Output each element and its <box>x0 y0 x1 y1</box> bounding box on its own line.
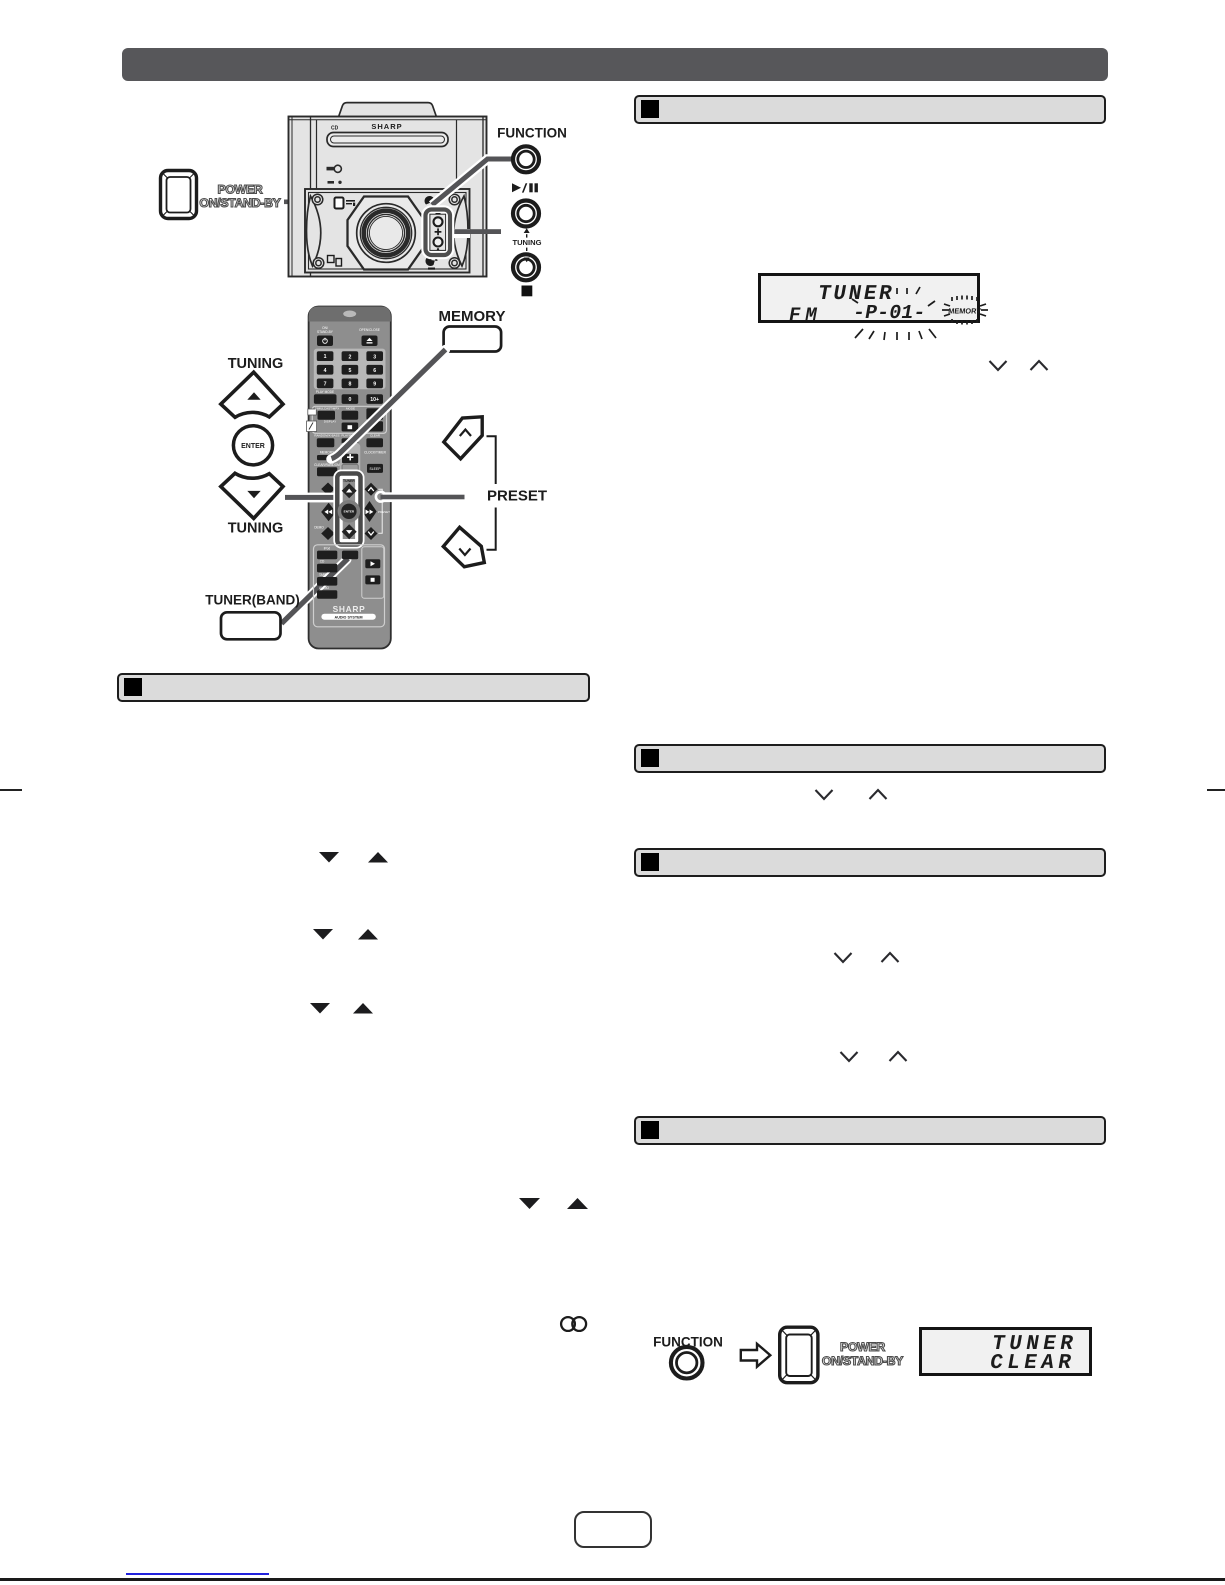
svg-text:PLAY MODE: PLAY MODE <box>316 390 334 394</box>
svg-text:TUNER(BAND): TUNER(BAND) <box>205 593 300 608</box>
svg-text:CLEAR: CLEAR <box>370 434 381 438</box>
svg-text:AUDIO: AUDIO <box>319 586 330 590</box>
svg-text:OPEN/CLOSE: OPEN/CLOSE <box>359 328 380 332</box>
svg-text:6: 6 <box>373 368 376 374</box>
svg-text:CD: CD <box>320 560 325 564</box>
svg-text:CLEAR/RANDOM: CLEAR/RANDOM <box>314 463 340 467</box>
svg-text:POWER: POWER <box>218 183 263 197</box>
svg-text:PRESET: PRESET <box>378 510 390 514</box>
svg-text:POWER: POWER <box>840 1340 885 1354</box>
svg-text:SHARP: SHARP <box>333 604 366 614</box>
svg-text:8: 8 <box>348 382 351 388</box>
svg-text:CLOCK/TIMER: CLOCK/TIMER <box>364 451 386 455</box>
svg-text:TUNER: TUNER <box>343 479 355 483</box>
svg-text:9: 9 <box>373 382 376 388</box>
svg-text:RANDOM/X-BASS: RANDOM/X-BASS <box>314 434 339 438</box>
svg-text:ENTER: ENTER <box>241 443 265 450</box>
svg-text:SIMULCAST/MPX: SIMULCAST/MPX <box>315 407 340 411</box>
svg-text:AUDIO SYSTEM: AUDIO SYSTEM <box>335 615 363 619</box>
svg-text:ON/STAND-BY: ON/STAND-BY <box>822 1354 903 1368</box>
svg-text:iPod: iPod <box>324 546 331 550</box>
svg-text:SLEEP: SLEEP <box>370 467 382 471</box>
svg-text:CD: CD <box>331 126 339 132</box>
svg-text:MEMORY: MEMORY <box>948 307 982 316</box>
svg-text:MEMORY: MEMORY <box>439 308 506 325</box>
svg-text:4: 4 <box>324 368 327 374</box>
svg-text:7: 7 <box>324 382 327 388</box>
svg-text:PRESET: PRESET <box>487 488 547 505</box>
svg-text:FUNCTION: FUNCTION <box>497 126 567 141</box>
svg-text:STAND-BY: STAND-BY <box>317 330 334 334</box>
svg-text:2: 2 <box>348 354 351 360</box>
svg-text:1: 1 <box>324 354 327 360</box>
svg-text:DISPLAY: DISPLAY <box>324 419 336 423</box>
svg-text:TUNING: TUNING <box>228 521 284 537</box>
svg-text:DEMO: DEMO <box>314 526 324 530</box>
svg-text:ENTER: ENTER <box>344 510 355 514</box>
svg-text:ON/STAND-BY: ON/STAND-BY <box>199 196 280 210</box>
svg-text:TAPE: TAPE <box>319 573 327 577</box>
svg-text:MODE: MODE <box>346 407 355 411</box>
svg-text:3: 3 <box>373 354 376 360</box>
svg-text:TUNING: TUNING <box>512 238 541 247</box>
svg-text:TUNING: TUNING <box>228 356 284 372</box>
svg-text:10+: 10+ <box>370 397 379 403</box>
svg-text:5: 5 <box>348 368 351 374</box>
svg-text:SHARP: SHARP <box>371 122 402 131</box>
svg-text:0: 0 <box>348 397 351 403</box>
